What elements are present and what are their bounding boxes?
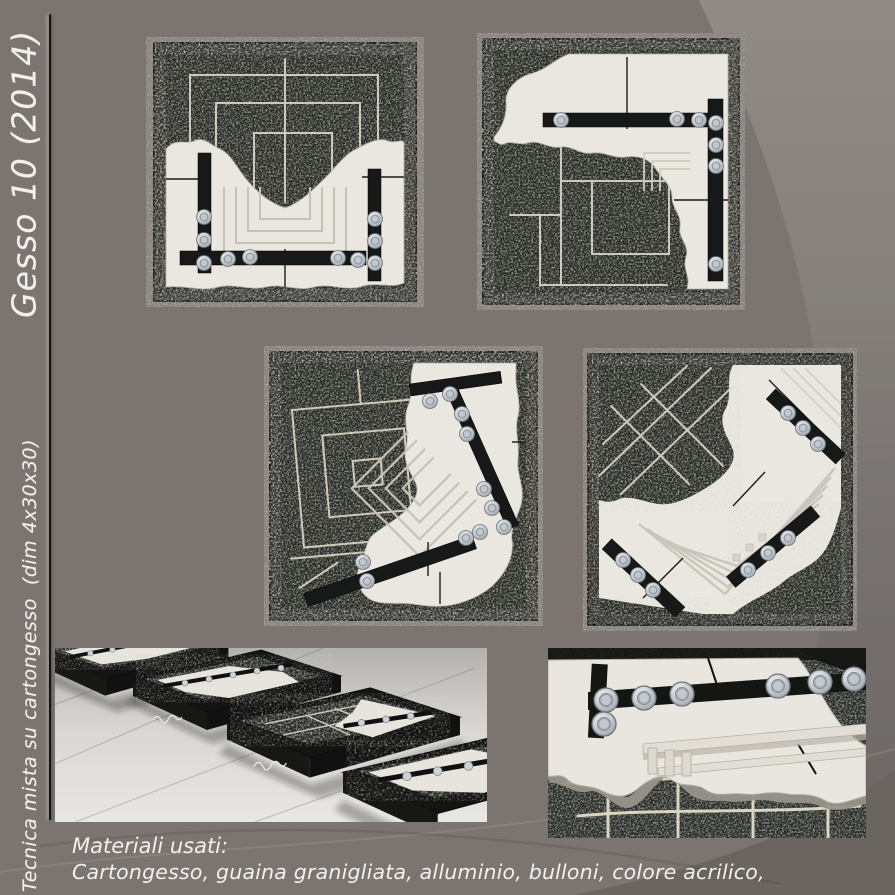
artwork-photo-3 bbox=[264, 346, 543, 626]
detail-photo bbox=[548, 648, 866, 838]
materials-caption: Materiali usati: Cartongesso, guaina gra… bbox=[72, 833, 765, 886]
materials-line: Cartongesso, guaina granigliata, allumin… bbox=[72, 859, 765, 886]
materials-heading: Materiali usati: bbox=[72, 833, 765, 859]
artwork-photo-4 bbox=[583, 348, 857, 631]
page-title: Gesso 10 (2014) bbox=[0, 6, 48, 318]
page-subtitle: Tecnica mista su cartongesso (dim 4x30x3… bbox=[8, 382, 52, 892]
portfolio-page: Gesso 10 (2014) Tecnica mista su cartong… bbox=[0, 0, 895, 895]
artwork-photo-1 bbox=[146, 37, 424, 307]
installation-photo bbox=[55, 648, 487, 822]
artwork-photo-2 bbox=[477, 33, 745, 310]
